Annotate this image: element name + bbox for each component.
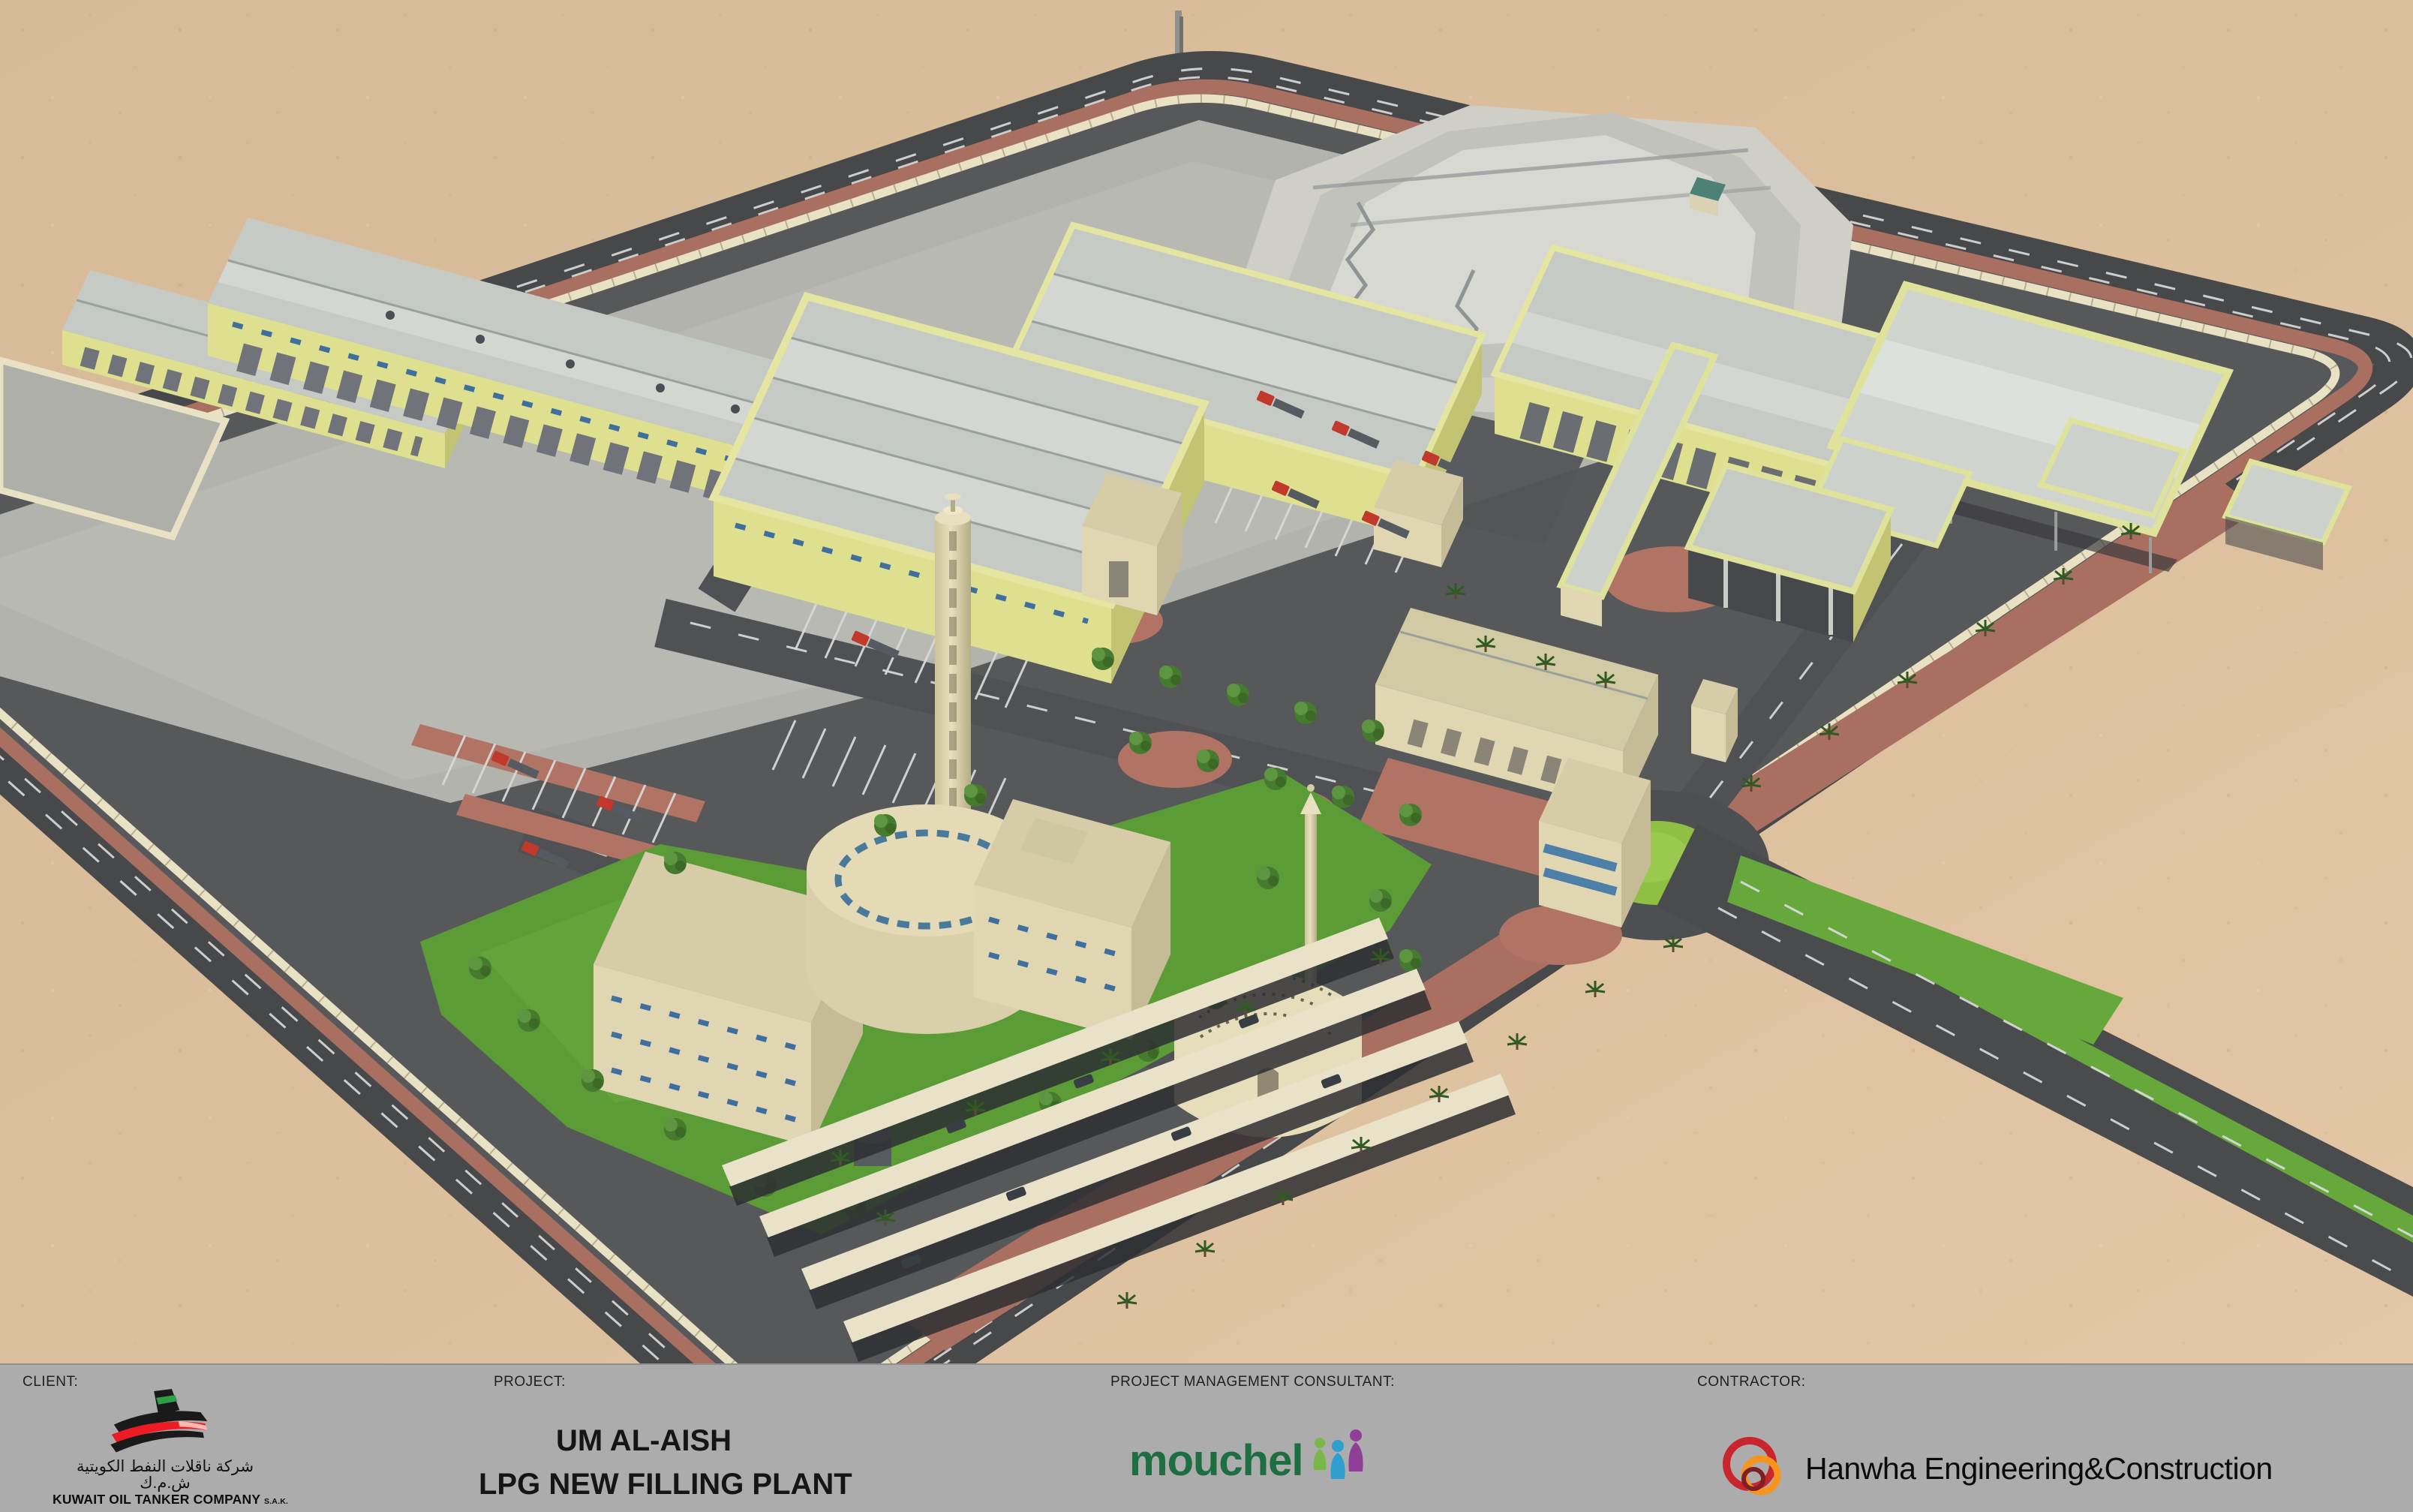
mouchel-wordmark: mouchel	[1129, 1431, 1303, 1491]
office-block-b	[974, 799, 1170, 1040]
project-label: PROJECT:	[494, 1374, 566, 1390]
consultant-label: PROJECT MANAGEMENT CONSULTANT:	[1110, 1374, 1395, 1390]
contractor-label: CONTRACTOR:	[1697, 1374, 1805, 1390]
kotc-logo: شركة ناقلات النفط الكويتية ش.م.ك KUWAIT …	[53, 1389, 278, 1509]
project-name: UM AL-AISH LPG NEW FILLING PLANT	[479, 1419, 809, 1506]
title-block: CLIENT: شركة ناقلات النفط الكويتية ش.م.ك…	[0, 1363, 2413, 1512]
hanwha-logo: Hanwha Engineering&Construction	[1720, 1431, 2273, 1506]
project-section: PROJECT: UM AL-AISH LPG NEW FILLING PLAN…	[494, 1365, 1094, 1512]
client-label: CLIENT:	[23, 1374, 78, 1390]
client-section: CLIENT: شركة ناقلات النفط الكويتية ش.م.ك…	[23, 1365, 488, 1512]
substation-cube	[1082, 473, 1182, 615]
site-rendering: .dash{stroke:#dcdcdc;stroke-width:3;stro…	[0, 0, 2413, 1363]
kotc-english-name: KUWAIT OIL TANKER COMPANY S.A.K.	[53, 1492, 278, 1507]
hanwha-wordmark: Hanwha Engineering&Construction	[1805, 1451, 2273, 1486]
kiosk-tower	[1691, 679, 1738, 762]
consultant-section: PROJECT MANAGEMENT CONSULTANT: mouchel	[1110, 1365, 1696, 1512]
hanwha-rings-icon	[1720, 1431, 1795, 1506]
kotc-ship-icon	[98, 1389, 233, 1453]
contractor-section: CONTRACTOR: Hanwha Engineering&Construct…	[1697, 1365, 2413, 1512]
presentation-board: .dash{stroke:#dcdcdc;stroke-width:3;stro…	[0, 0, 2413, 1512]
mouchel-people-icon	[1309, 1426, 1366, 1495]
kotc-arabic-name: شركة ناقلات النفط الكويتية ش.م.ك	[53, 1459, 278, 1492]
mouchel-logo: mouchel	[1129, 1431, 1366, 1495]
